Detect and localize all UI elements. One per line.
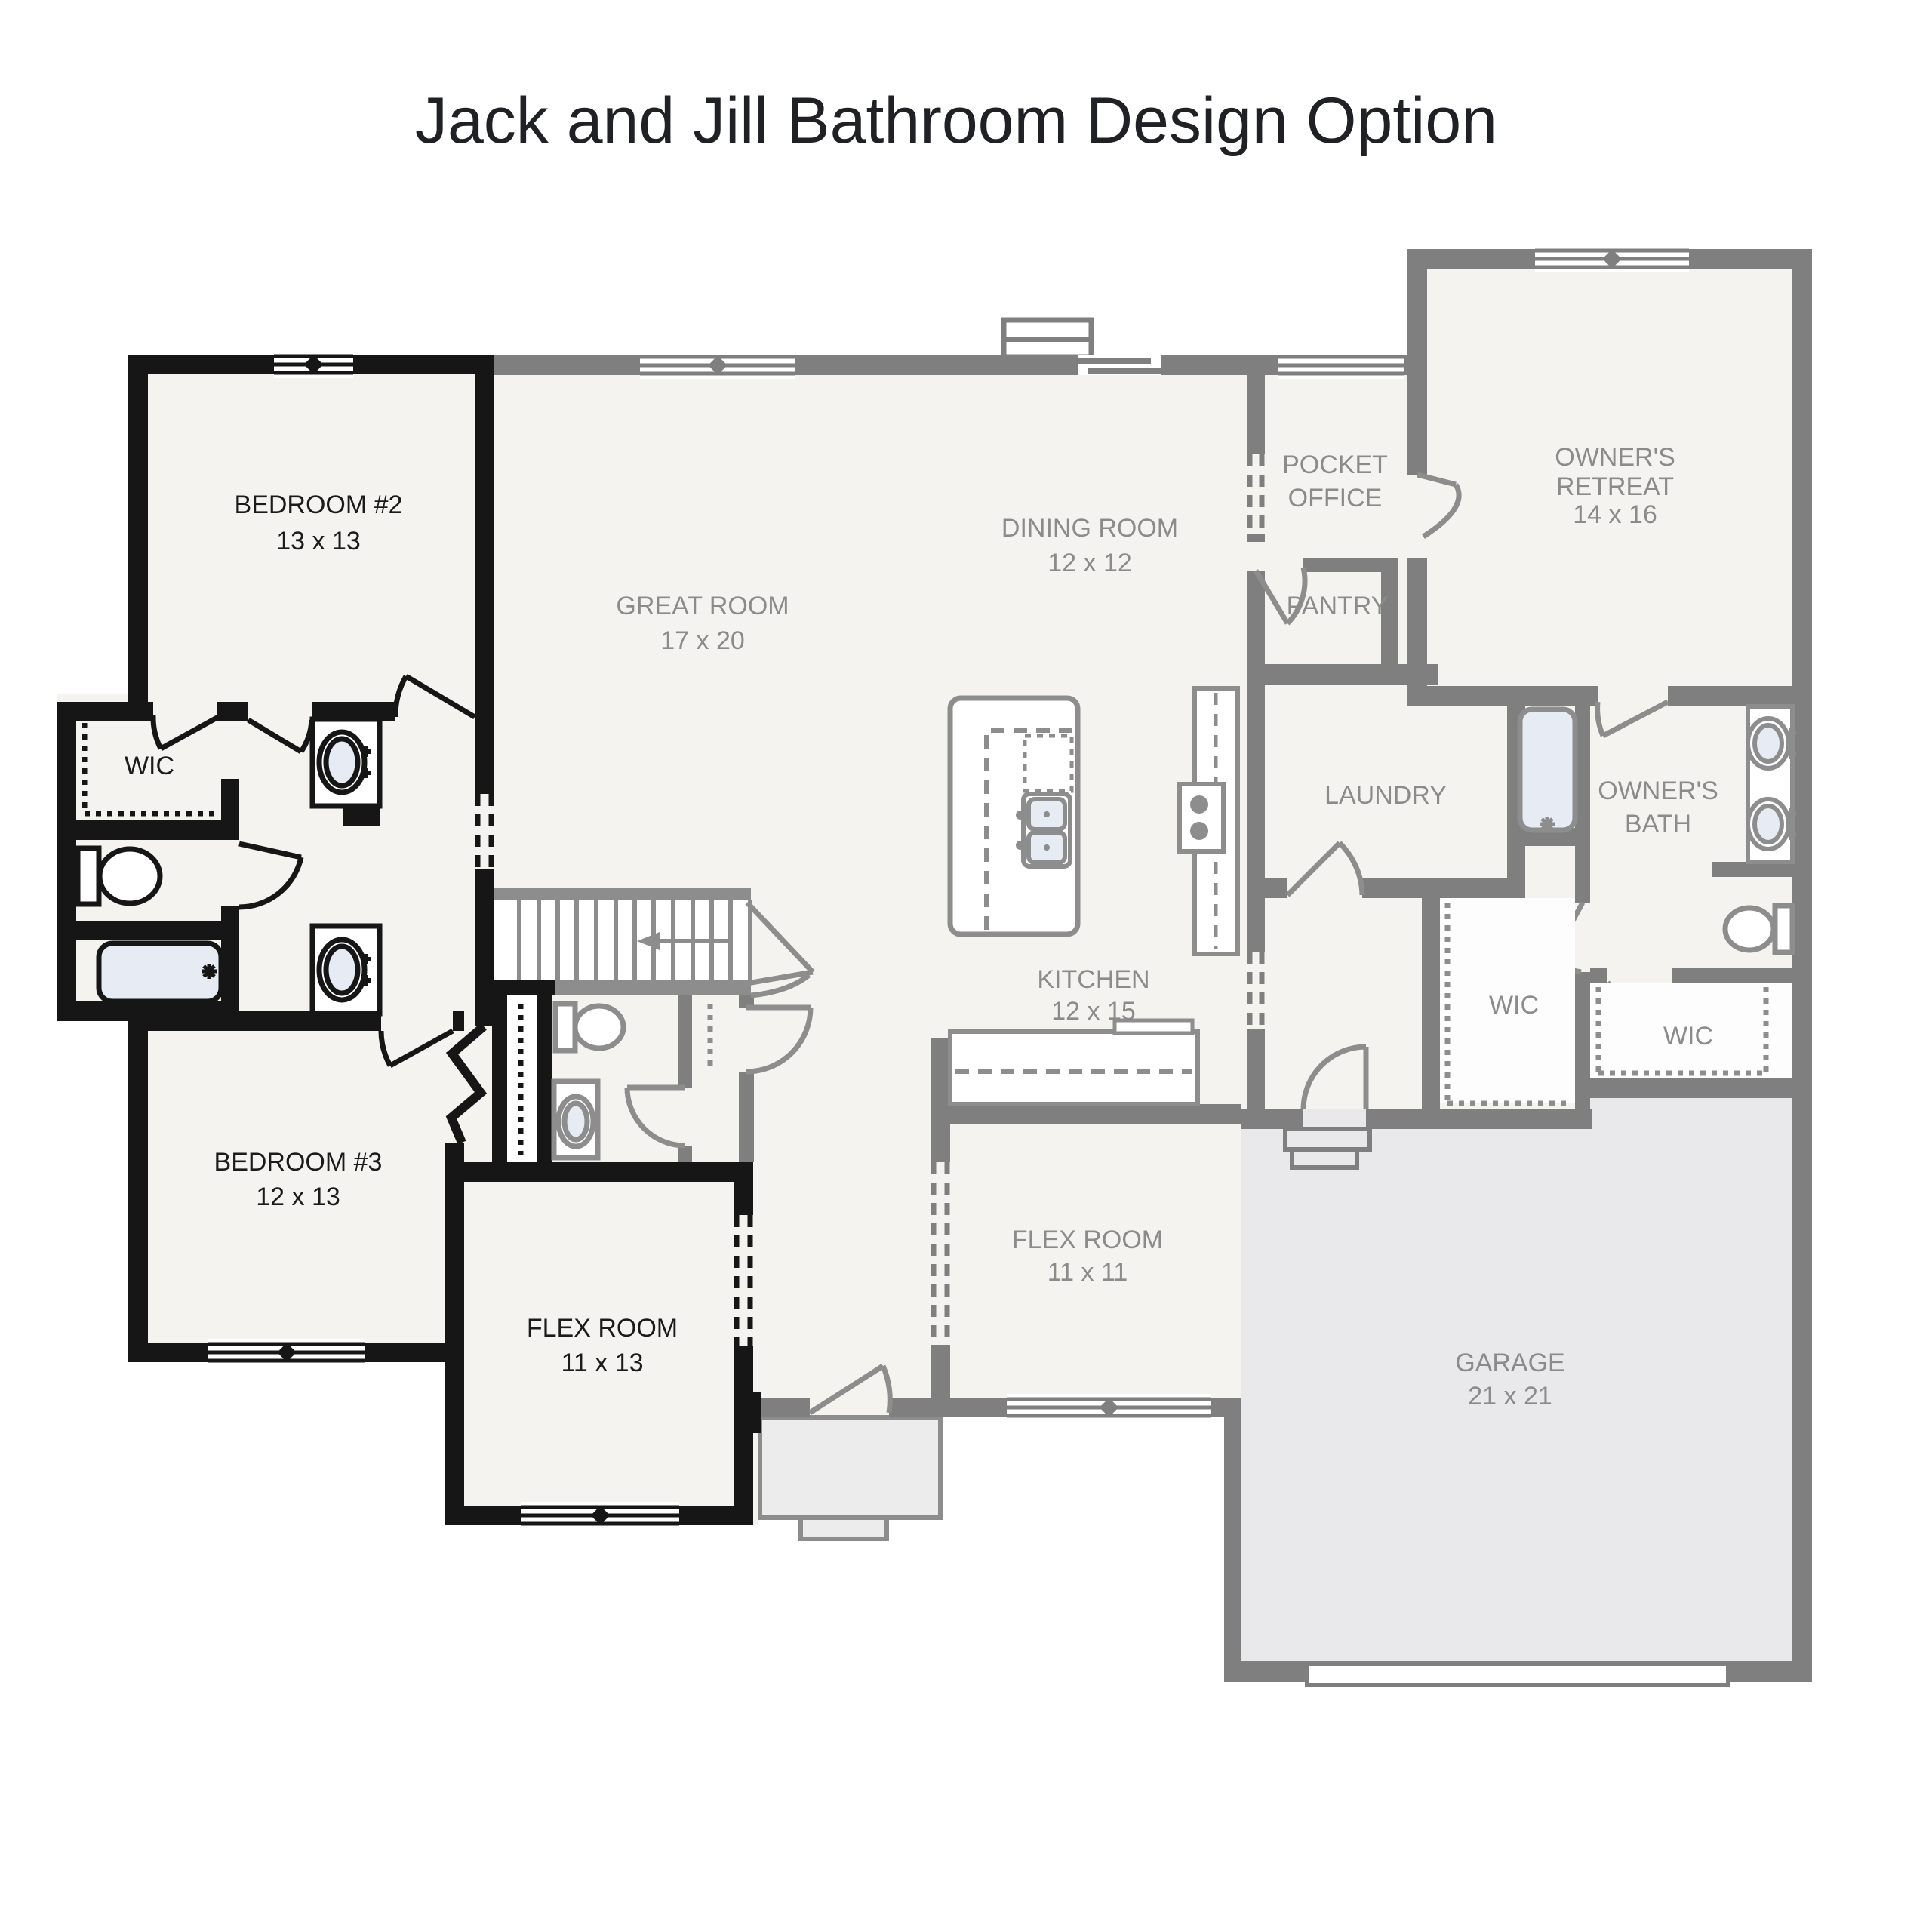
svg-text:WIC: WIC <box>1489 991 1539 1020</box>
svg-text:LAUNDRY: LAUNDRY <box>1324 781 1447 810</box>
svg-text:12 x 15: 12 x 15 <box>1051 997 1136 1026</box>
svg-text:DINING ROOM: DINING ROOM <box>1001 514 1178 543</box>
svg-text:12 x 13: 12 x 13 <box>256 1183 340 1211</box>
svg-text:GREAT ROOM: GREAT ROOM <box>616 592 789 620</box>
svg-text:17 x 20: 17 x 20 <box>660 626 745 655</box>
svg-text:13 x 13: 13 x 13 <box>276 527 361 555</box>
svg-text:POCKET: POCKET <box>1282 451 1388 479</box>
svg-text:11 x 13: 11 x 13 <box>561 1349 643 1377</box>
svg-text:11 x 11: 11 x 11 <box>1048 1258 1128 1287</box>
svg-text:KITCHEN: KITCHEN <box>1037 965 1149 994</box>
svg-text:PANTRY: PANTRY <box>1287 592 1389 620</box>
svg-text:Jack and Jill Bathroom Design: Jack and Jill Bathroom Design Option <box>415 85 1497 157</box>
svg-text:FLEX ROOM: FLEX ROOM <box>527 1314 678 1343</box>
svg-text:BEDROOM #2: BEDROOM #2 <box>235 491 403 519</box>
svg-text:21 x 21: 21 x 21 <box>1468 1382 1552 1411</box>
svg-text:OWNER'S: OWNER'S <box>1555 443 1675 472</box>
svg-text:BEDROOM #3: BEDROOM #3 <box>214 1148 383 1177</box>
svg-text:FLEX ROOM: FLEX ROOM <box>1012 1226 1163 1254</box>
svg-text:OFFICE: OFFICE <box>1288 484 1383 512</box>
svg-text:WIC: WIC <box>1663 1022 1713 1051</box>
svg-text:BATH: BATH <box>1625 810 1691 838</box>
svg-text:RETREAT: RETREAT <box>1556 472 1674 501</box>
svg-text:14 x 16: 14 x 16 <box>1573 500 1657 529</box>
svg-text:WIC: WIC <box>125 752 174 780</box>
svg-text:GARAGE: GARAGE <box>1455 1349 1564 1377</box>
svg-text:OWNER'S: OWNER'S <box>1598 777 1718 805</box>
svg-text:12 x 12: 12 x 12 <box>1048 549 1132 577</box>
